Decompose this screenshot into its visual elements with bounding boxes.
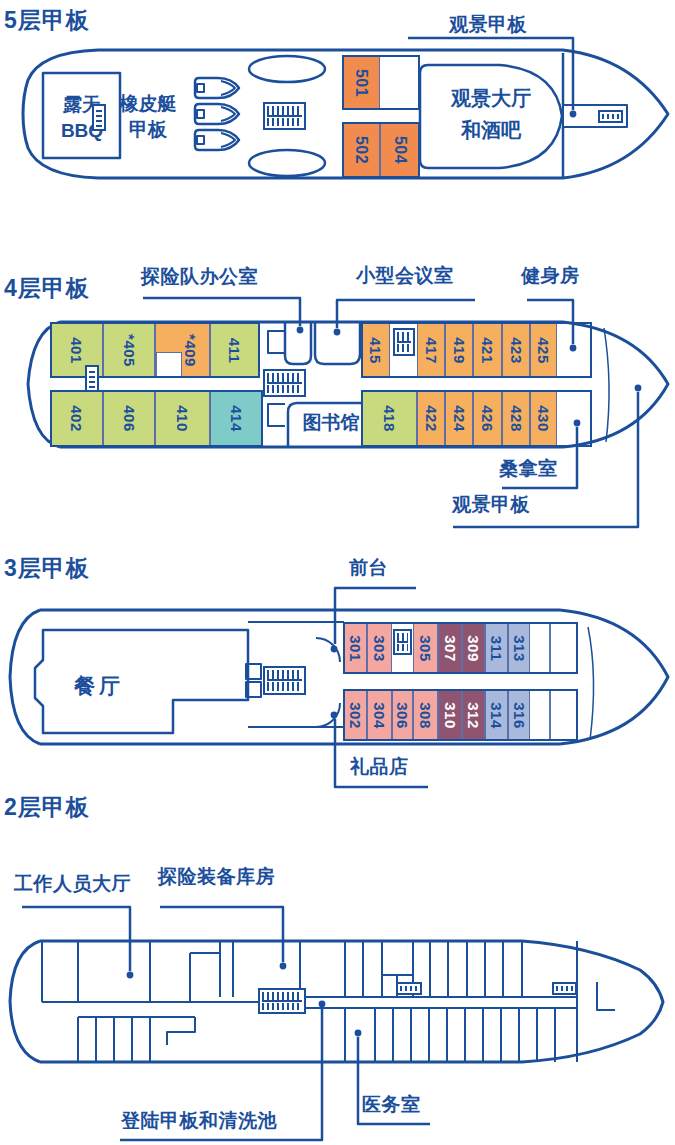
zodiac-boat-icon (195, 78, 239, 98)
cabin-316: 316 (508, 689, 530, 741)
cabin-419: 419 (445, 322, 473, 378)
deck5-title: 5层甲板 (4, 5, 90, 36)
cabin-309: 309 (462, 622, 485, 674)
medical-room-label: 医务室 (362, 1092, 421, 1118)
equipment-store-label: 探险装备库房 (158, 864, 275, 890)
cabin-311: 311 (485, 622, 508, 674)
cabin-504: 504 (380, 122, 420, 178)
cabin-402: 402 (50, 390, 103, 447)
bbq-room-label: 露天 BBQ (45, 92, 119, 143)
stairs-icon (598, 110, 623, 123)
cabin-423: 423 (502, 322, 530, 378)
cabin-409-inset (156, 352, 182, 377)
cabin-305: 305 (413, 622, 438, 674)
stairs-icon (85, 365, 99, 392)
dining-room-label: 餐厅 (58, 672, 140, 700)
reception-label: 前台 (349, 555, 388, 581)
cabin-301: 301 (344, 622, 367, 674)
cabin-410: 410 (155, 390, 210, 447)
deck2-title: 2层甲板 (4, 792, 90, 823)
stairs-icon (263, 666, 306, 695)
cabin-425: 425 (530, 322, 557, 378)
cabin-414: 414 (210, 390, 263, 447)
expedition-office-label: 探险队办公室 (141, 264, 258, 290)
zodiac-deck-label: 橡皮艇 甲板 (118, 91, 178, 142)
gift-shop-label: 礼品店 (350, 754, 409, 780)
cabin-302: 302 (344, 689, 367, 741)
zodiac-boats (195, 78, 239, 150)
gym-label: 健身房 (521, 263, 580, 289)
cabin-303: 303 (367, 622, 392, 674)
cabin-312: 312 (462, 689, 485, 741)
zodiac-boat-icon (195, 104, 239, 124)
cabin-501: 501 (342, 55, 380, 110)
cabin-310: 310 (438, 689, 462, 741)
cabin-313: 313 (508, 622, 530, 674)
stairs-icon (393, 328, 415, 356)
stairs-icon (396, 982, 422, 995)
stairs-icon (92, 104, 106, 131)
cabin-417: 417 (417, 322, 445, 378)
meeting-room (315, 322, 360, 364)
cabin-405: *405 (103, 322, 155, 378)
deck3-title: 3层甲板 (4, 553, 90, 584)
meeting-room-label: 小型会议室 (356, 263, 454, 289)
bow-deck-line (588, 627, 594, 740)
cabin-409: *409 (155, 322, 210, 378)
cabin-430: 430 (530, 390, 557, 447)
cabin-306: 306 (392, 689, 413, 741)
deck4-title: 4层甲板 (4, 273, 90, 304)
library-label: 图书馆 (294, 410, 368, 436)
stairs-icon (258, 988, 306, 1014)
cabin-307: 307 (438, 622, 462, 674)
sauna-label: 桑拿室 (499, 456, 558, 482)
stairs-icon (552, 982, 577, 995)
cabin-314: 314 (485, 689, 508, 741)
deck5-white-room (379, 55, 420, 110)
deck2-walls (42, 941, 615, 1062)
bow-deck-line (604, 328, 609, 442)
zodiac-boat-icon (195, 130, 239, 150)
deck5-observation-deck-label: 观景甲板 (449, 12, 527, 38)
deck4-observation-deck-label: 观景甲板 (452, 492, 530, 518)
tender-boat-icon (249, 56, 325, 82)
cabin-411: 411 (210, 322, 260, 378)
cabin-422: 422 (417, 390, 445, 447)
cabin-502: 502 (342, 122, 380, 178)
cabin-426: 426 (473, 390, 502, 447)
lounge-label: 观景大厅 和酒吧 (440, 82, 542, 146)
tender-boat-icon (249, 150, 325, 176)
cabin-415: 415 (361, 322, 390, 378)
stairs-icon (263, 102, 306, 130)
cabin-406: 406 (103, 390, 155, 447)
landing-deck-label: 登陆甲板和清洗池 (121, 1108, 277, 1134)
cabin-308: 308 (413, 689, 438, 741)
cabin-304: 304 (367, 689, 392, 741)
stairs-icon (263, 369, 306, 397)
cabin-428: 428 (502, 390, 530, 447)
cabin-418: 418 (361, 390, 417, 447)
deck-outlines-graphic (0, 0, 675, 1145)
cabin-421: 421 (473, 322, 502, 378)
cabin-424: 424 (445, 390, 473, 447)
stairs-icon (393, 629, 412, 655)
ship-deck-plan: 5层甲板 4层甲板 3层甲板 2层甲板 观景甲板 露天 BBQ 橡皮艇 甲板 观… (0, 0, 675, 1145)
staff-lounge-label: 工作人员大厅 (14, 871, 131, 897)
